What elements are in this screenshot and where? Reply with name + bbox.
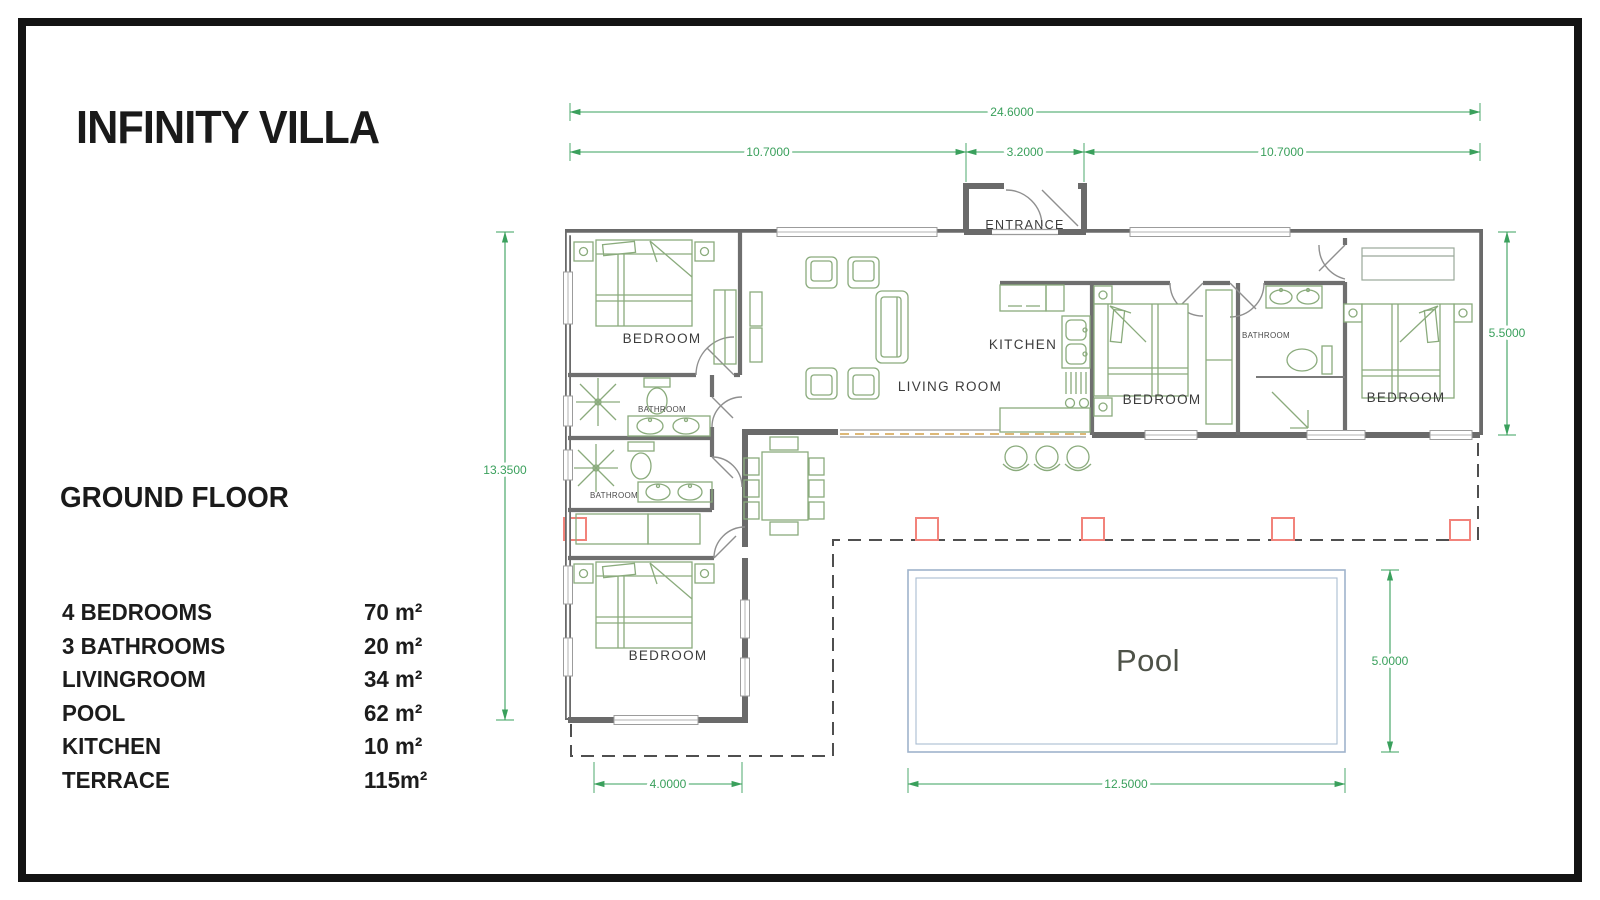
dim-left-section: 10.7000 [746,145,790,159]
bathroom3-fixtures [1266,286,1332,428]
window [564,396,573,426]
window [564,638,573,676]
window [741,600,750,638]
dim-pool-height: 5.0000 [1372,654,1409,668]
dim-total-width: 24.6000 [990,105,1034,119]
window [564,566,573,604]
pool-label: Pool [1116,643,1180,678]
window [1145,431,1197,440]
armchair [806,368,837,399]
terrace-post [1272,518,1294,540]
bed-bottom-left [574,562,714,648]
terrace-post [916,518,938,540]
terrace-post [1082,518,1104,540]
kitchen-units [1000,285,1091,471]
bed-right [1344,304,1472,398]
dim-entrance-width: 3.2000 [1007,145,1044,159]
wardrobe-bedroom-tl [714,290,736,364]
bed-top-left [574,240,714,326]
console-living-west [750,292,762,362]
window [741,658,750,696]
pool: Pool [908,570,1345,752]
room-label-bedroom-bl: BEDROOM [629,648,708,663]
armchair [806,257,837,288]
room-label-bathroom3: BATHROOM [1242,331,1290,340]
hall-bench [576,514,700,544]
floor-plan-page: { "title": "INFINITY VILLA", "floor_labe… [0,0,1600,900]
room-label-bedroom-middle: BEDROOM [1123,392,1202,407]
window [614,716,698,725]
room-label-entrance: ENTRANCE [985,218,1064,232]
dim-right-section: 10.7000 [1260,145,1304,159]
window [564,450,573,480]
dining-set [744,437,824,535]
dim-pool-width: 12.5000 [1104,777,1148,791]
bedroom3-door [1319,245,1345,279]
bedroom-right-closet [1362,248,1454,280]
dim-right-height: 5.5000 [1489,326,1526,340]
sofa [876,291,908,363]
room-label-bathroom2: BATHROOM [590,491,638,500]
window [777,228,937,237]
bedroom-bl-door [714,527,745,558]
armchair [848,257,879,288]
dim-bedroom-width: 4.0000 [650,777,687,791]
window [1307,431,1365,440]
dim-left-height: 13.3500 [483,463,527,477]
window [1130,228,1290,237]
room-label-living-room: LIVING ROOM [898,379,1002,394]
room-label-kitchen: KITCHEN [989,337,1057,352]
window [1430,431,1472,440]
floor-plan-drawing: 24.6000 10.7000 3.2000 10.7000 13.3500 5… [0,0,1600,900]
armchair [848,368,879,399]
doors [696,190,1345,558]
room-label-bedroom-tl: BEDROOM [623,331,702,346]
window [564,272,573,324]
terrace-post [1450,520,1470,540]
bathroom1-door [712,397,742,427]
bar-stools [1003,446,1091,471]
room-label-bedroom-right: BEDROOM [1367,390,1446,405]
bathroom2-door [712,457,742,487]
wardrobe-bedroom-middle [1206,290,1232,424]
living-room-seating [806,257,908,399]
room-label-bathroom1: BATHROOM [638,405,686,414]
bedroom-tl-door [696,337,734,375]
bathroom3-door [1230,283,1264,317]
